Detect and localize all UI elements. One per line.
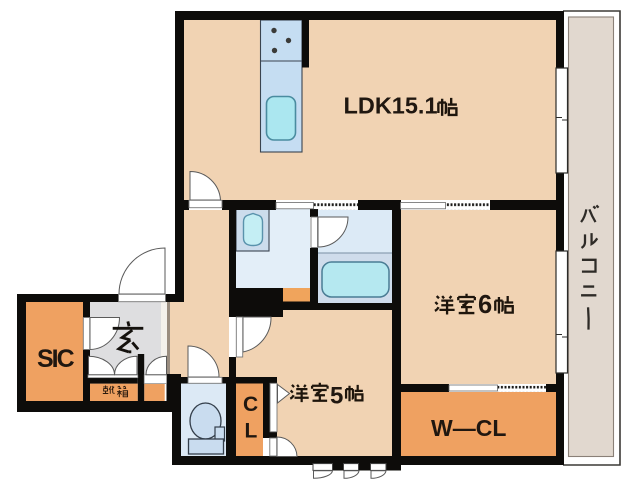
svg-text:L: L (245, 420, 258, 443)
svg-text:SIC: SIC (37, 345, 75, 373)
svg-text:C: C (243, 393, 258, 416)
svg-text:LDK15.1: LDK15.1 (344, 93, 438, 119)
svg-text:5: 5 (330, 383, 343, 410)
svg-text:6: 6 (478, 291, 492, 319)
svg-text:W—CL: W—CL (431, 415, 506, 441)
